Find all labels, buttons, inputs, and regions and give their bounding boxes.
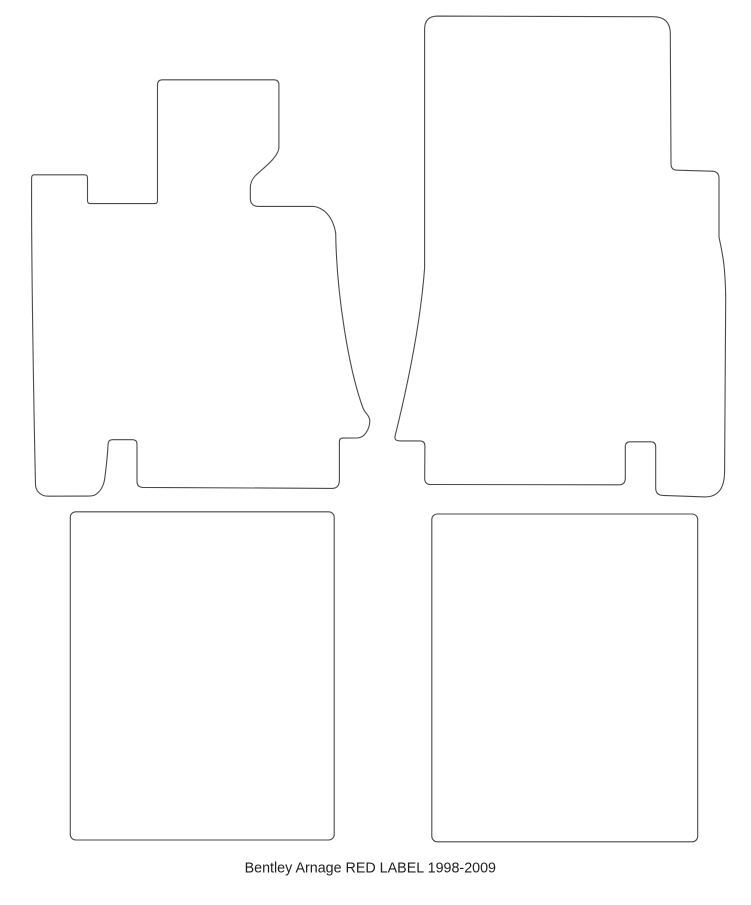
svg-text:Bentley Arnage RED LABEL 1998-: Bentley Arnage RED LABEL 1998-2009 [245,861,496,877]
